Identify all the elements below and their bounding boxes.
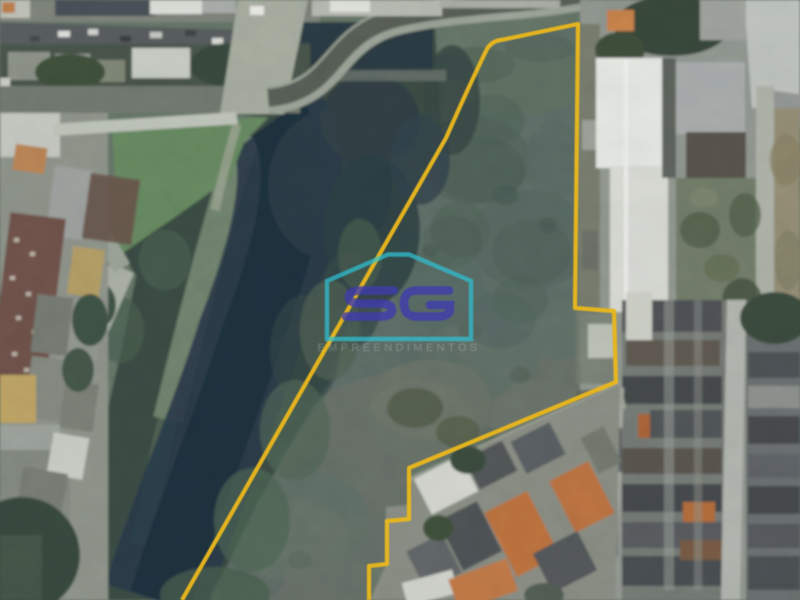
svg-text:EMPREENDIMENTOS: EMPREENDIMENTOS [317,342,480,354]
